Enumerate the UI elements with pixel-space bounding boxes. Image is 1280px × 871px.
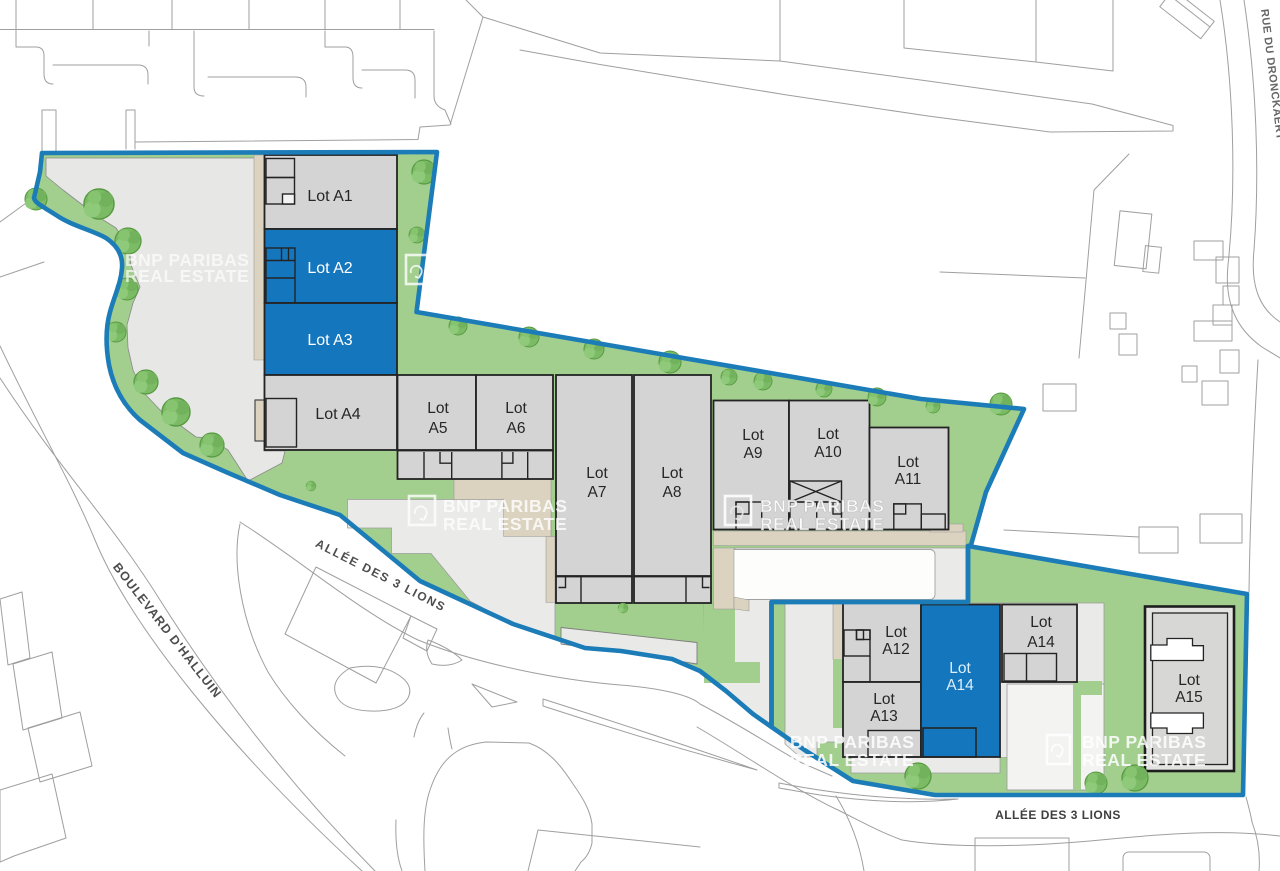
- svg-text:Lot: Lot: [505, 400, 527, 417]
- svg-text:Lot A1: Lot A1: [307, 188, 352, 205]
- svg-text:Lot: Lot: [1030, 614, 1052, 631]
- svg-text:A11: A11: [895, 471, 921, 488]
- svg-text:A9: A9: [744, 445, 763, 462]
- svg-text:A6: A6: [507, 420, 526, 437]
- svg-text:A5: A5: [429, 420, 448, 437]
- svg-text:A8: A8: [663, 484, 682, 501]
- svg-text:Lot: Lot: [586, 465, 608, 482]
- svg-text:A14: A14: [1027, 634, 1055, 651]
- svg-text:Lot: Lot: [817, 426, 839, 443]
- svg-text:REAL ESTATE: REAL ESTATE: [760, 514, 884, 534]
- svg-text:REAL ESTATE: REAL ESTATE: [1082, 750, 1206, 770]
- svg-text:BNP PARIBAS: BNP PARIBAS: [790, 732, 914, 752]
- svg-text:A10: A10: [814, 444, 842, 461]
- svg-text:REAL ESTATE: REAL ESTATE: [125, 266, 249, 286]
- svg-text:Lot: Lot: [742, 427, 764, 444]
- svg-text:Lot A2: Lot A2: [307, 260, 352, 277]
- svg-text:A12: A12: [882, 641, 910, 658]
- svg-text:Lot: Lot: [427, 400, 449, 417]
- svg-text:Lot: Lot: [1178, 672, 1200, 689]
- svg-text:A13: A13: [870, 708, 898, 725]
- svg-text:ALLÉE DES 3 LIONS: ALLÉE DES 3 LIONS: [995, 807, 1121, 822]
- svg-text:Lot: Lot: [873, 691, 895, 708]
- svg-text:Lot: Lot: [897, 454, 919, 471]
- svg-text:BNP PARIBAS: BNP PARIBAS: [443, 496, 567, 516]
- svg-text:Lot: Lot: [661, 465, 683, 482]
- svg-text:BNP PARIBAS: BNP PARIBAS: [1082, 732, 1206, 752]
- svg-text:REAL ESTATE: REAL ESTATE: [790, 750, 914, 770]
- svg-text:A15: A15: [1175, 689, 1203, 706]
- svg-text:REAL ESTATE: REAL ESTATE: [443, 514, 567, 534]
- svg-text:A14: A14: [946, 677, 974, 694]
- svg-text:BNP PARIBAS: BNP PARIBAS: [760, 496, 884, 516]
- svg-text:Lot A4: Lot A4: [315, 406, 360, 423]
- svg-text:A7: A7: [588, 484, 607, 501]
- svg-text:Lot: Lot: [885, 624, 907, 641]
- svg-text:Lot A3: Lot A3: [307, 332, 352, 349]
- svg-text:Lot: Lot: [949, 660, 971, 677]
